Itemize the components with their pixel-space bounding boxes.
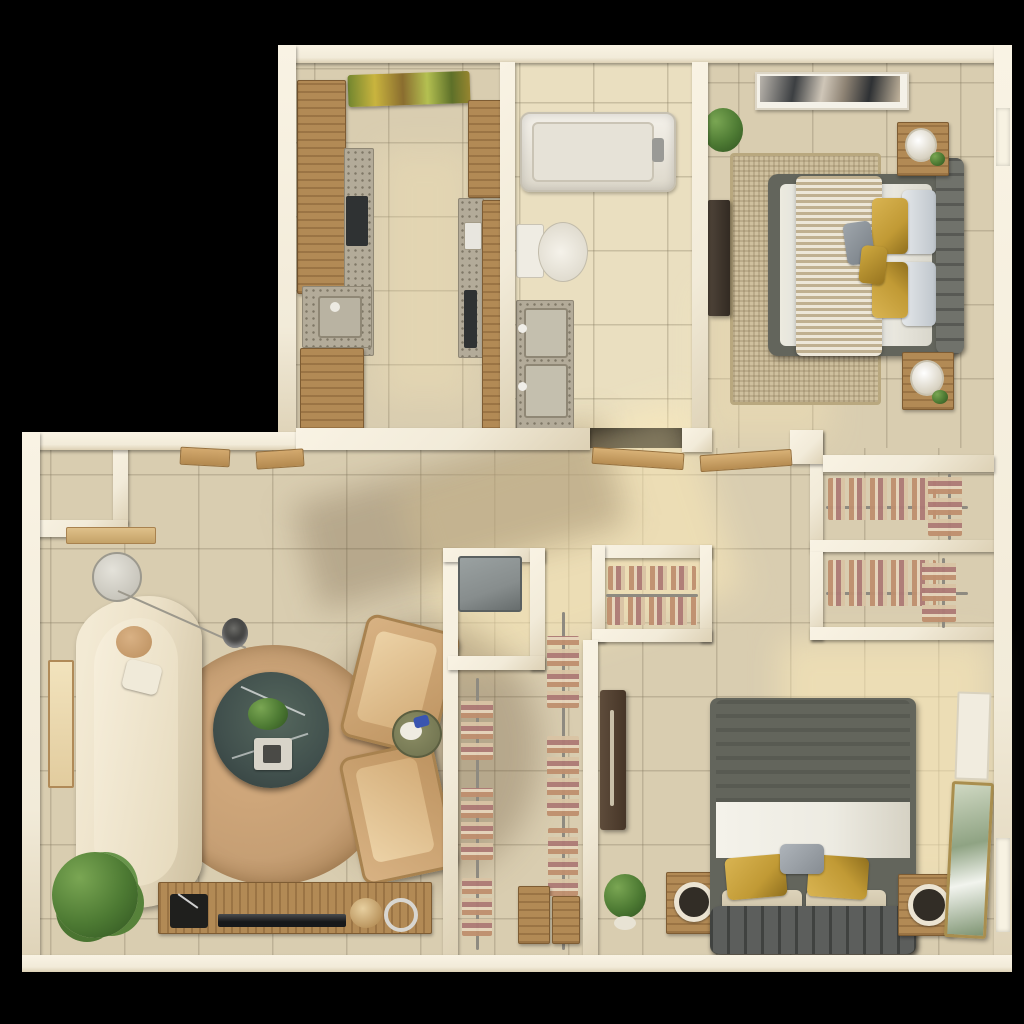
closet-left-wall: [443, 548, 458, 957]
sofa-seat-cushion: [94, 618, 178, 886]
tv-flat: [218, 914, 346, 927]
bedroom2-gray-pillow: [780, 844, 824, 874]
hanging-clothes: [828, 560, 936, 606]
kitchen-prep-sink: [464, 222, 482, 250]
laundry-bottom-wall: [448, 656, 545, 670]
kitchen-faucet: [330, 302, 340, 312]
bedroom1-accent-pillow-gold: [858, 245, 888, 286]
bathtub-basin: [532, 122, 654, 182]
coffee-table: [213, 672, 329, 788]
bedroom2-duvet: [716, 700, 910, 804]
outer-wall-bottom: [22, 955, 1012, 972]
hanging-clothes: [548, 828, 578, 896]
bedroom1-bottom-wall: [823, 455, 994, 472]
bathroom-bedroom1-wall: [692, 62, 708, 446]
hanging-clothes: [828, 478, 936, 520]
dresser-handle: [610, 710, 614, 806]
nightstand-plant-top: [930, 152, 945, 166]
hanging-clothes: [928, 476, 962, 536]
turntable: [170, 894, 208, 928]
storage-crate-1: [518, 886, 550, 944]
kitchen-cabinet-left-lower: [300, 348, 364, 430]
cooktop: [346, 196, 368, 246]
floor-plan-scene: [0, 0, 1024, 1024]
vanity-basin-1: [524, 308, 568, 358]
leaning-art-panel: [48, 660, 74, 788]
folded-clothes-shelf: [608, 566, 696, 590]
bedroom2-left-wall: [583, 640, 598, 957]
bedroom2-plant: [604, 874, 646, 918]
ring-speaker-left: [674, 882, 714, 922]
laundry-appliance: [458, 556, 522, 612]
bedroom2-window: [996, 838, 1010, 932]
mid-closet-right-wall: [700, 545, 712, 642]
bedroom1-headboard: [936, 158, 964, 354]
vanity-faucet-1: [518, 324, 527, 333]
outer-wall-top: [278, 45, 1012, 63]
closet-a-bottom-wall: [810, 540, 994, 552]
bedroom1-plant: [703, 108, 743, 152]
hanging-clothes: [547, 636, 579, 708]
hanging-clothes: [922, 560, 956, 622]
kitchen-cabinet-left-tall: [297, 80, 346, 294]
hanging-clothes: [462, 878, 492, 936]
ring-decor: [384, 898, 418, 932]
gold-decor: [350, 898, 382, 928]
kitchen-runner-rug: [347, 71, 470, 107]
hanging-clothes: [547, 736, 579, 816]
bedroom2-tufted-bench: [710, 906, 916, 954]
bedroom1-media-dresser: [708, 200, 730, 316]
entry-door-leaf-2: [255, 448, 304, 469]
entry-shelf: [66, 527, 156, 544]
mid-closet-left-wall: [592, 545, 605, 642]
ring-speaker-right: [908, 884, 950, 926]
laundry-right-wall: [530, 548, 545, 670]
hanging-clothes: [461, 698, 493, 760]
hanging-clothes: [607, 597, 697, 625]
bedroom2-gold-pillow-left: [724, 853, 787, 900]
sofa-round-cushion: [116, 626, 152, 658]
storage-crate-2: [552, 896, 580, 944]
arc-lamp-shade: [92, 552, 142, 602]
bedroom2-plant-pot: [614, 916, 636, 930]
upper-bottom-wall-post: [682, 428, 712, 452]
bedroom1-corner-wall: [790, 430, 823, 464]
mid-closet-top-wall: [592, 545, 712, 558]
kitchen-counter-right-wood: [482, 200, 502, 430]
bedroom1-wall-art: [760, 76, 900, 102]
hanging-clothes: [461, 788, 493, 860]
bathtub-faucet: [652, 138, 664, 162]
vanity-basin-2: [524, 364, 568, 418]
leaning-white-panel: [954, 691, 991, 780]
vanity-faucet-2: [518, 382, 527, 391]
kitchen-bathroom-wall: [500, 62, 515, 430]
nightstand-plant-bottom: [932, 390, 948, 404]
upper-bottom-wall-left: [296, 428, 590, 450]
mid-closet-bottom-wall: [592, 629, 712, 642]
tray-decor: [263, 745, 281, 763]
wall-oven: [464, 290, 477, 348]
entry-door-leaf-1: [180, 447, 231, 468]
outer-wall-right: [994, 45, 1012, 972]
kitchen-cabinet-right-upper: [468, 100, 502, 198]
closet-b-bottom-wall: [810, 627, 994, 640]
kitchen-sink-basin: [318, 296, 362, 338]
outer-wall-upper-left: [278, 45, 296, 447]
coffee-table-plant: [248, 698, 288, 730]
bedroom1-window: [996, 108, 1010, 166]
arc-lamp-head: [222, 618, 248, 648]
living-floor-plant: [52, 852, 138, 938]
outer-wall-lower-top: [22, 432, 296, 450]
leaning-mirror: [944, 781, 994, 939]
toilet-bowl: [538, 222, 588, 282]
outer-wall-left: [22, 432, 40, 972]
